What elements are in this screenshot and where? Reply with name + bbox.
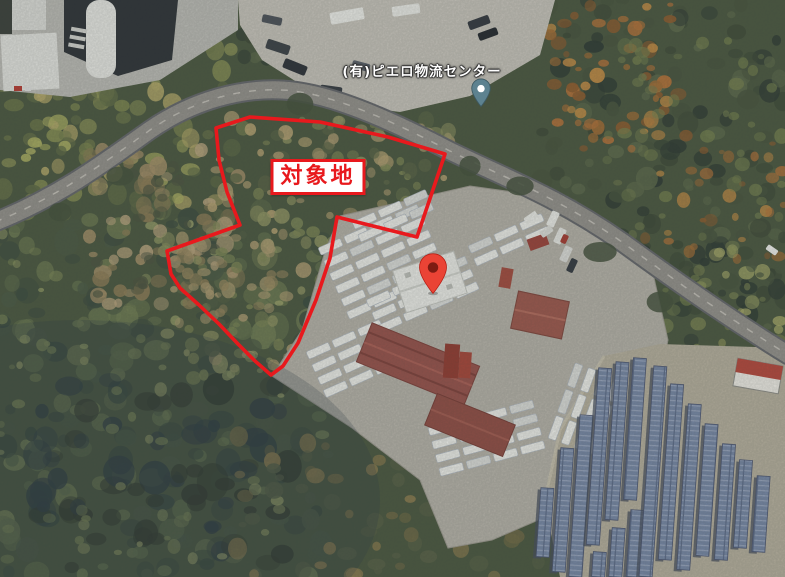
map-canvas[interactable]: (有)ピエロ物流センター 対象地 [0,0,785,577]
place-pin-icon[interactable] [470,78,492,108]
aerial-photo [0,0,785,577]
red-map-marker-icon[interactable] [418,252,448,296]
